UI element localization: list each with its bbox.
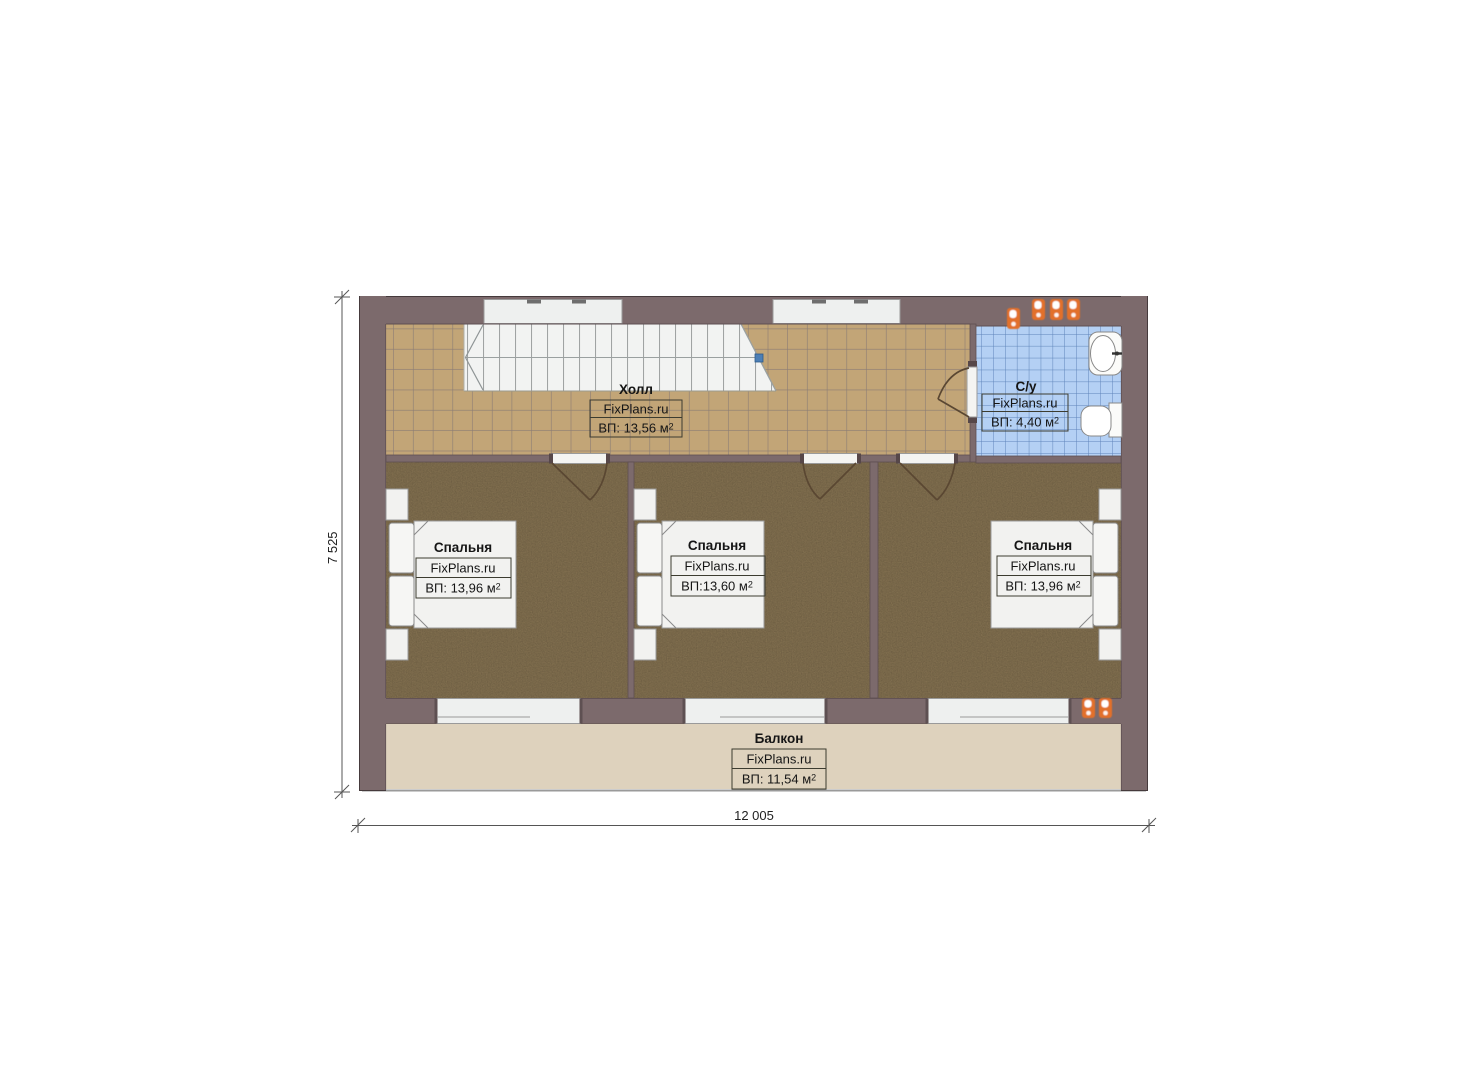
svg-text:ВП: 13,96 м2: ВП: 13,96 м2 (1005, 579, 1080, 594)
svg-text:FixPlans.ru: FixPlans.ru (992, 396, 1057, 411)
svg-text:FixPlans.ru: FixPlans.ru (1010, 559, 1075, 574)
svg-text:FixPlans.ru: FixPlans.ru (603, 402, 668, 417)
svg-text:Спальня: Спальня (688, 538, 746, 553)
svg-text:7 525: 7 525 (325, 531, 340, 564)
svg-text:ВП: 13,56 м2: ВП: 13,56 м2 (598, 421, 673, 436)
svg-text:Спальня: Спальня (1014, 538, 1072, 553)
svg-text:С/у: С/у (1015, 379, 1037, 394)
svg-text:FixPlans.ru: FixPlans.ru (746, 752, 811, 767)
svg-text:Балкон: Балкон (755, 731, 804, 746)
svg-text:ВП: 11,54 м2: ВП: 11,54 м2 (742, 772, 816, 787)
svg-text:FixPlans.ru: FixPlans.ru (684, 559, 749, 574)
svg-text:ВП:13,60 м2: ВП:13,60 м2 (681, 579, 753, 594)
svg-text:Спальня: Спальня (434, 540, 492, 555)
svg-text:FixPlans.ru: FixPlans.ru (430, 561, 495, 576)
svg-text:Холл: Холл (619, 382, 653, 397)
svg-text:12 005: 12 005 (734, 808, 774, 823)
svg-text:ВП: 13,96 м2: ВП: 13,96 м2 (425, 581, 500, 596)
svg-text:ВП: 4,40 м2: ВП: 4,40 м2 (991, 415, 1059, 430)
